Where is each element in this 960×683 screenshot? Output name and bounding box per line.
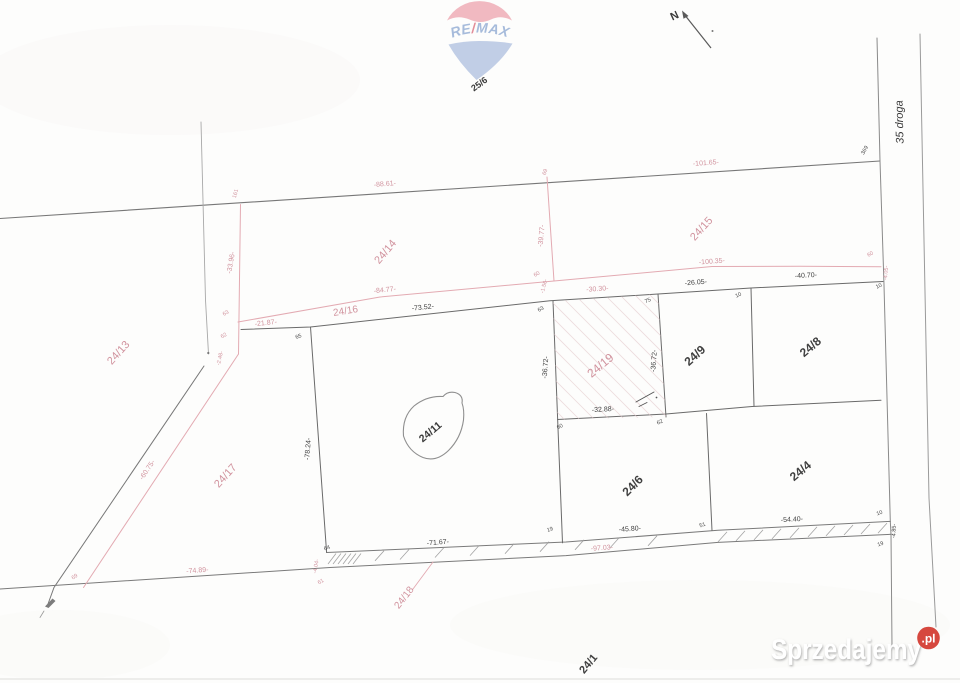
svg-text:-32.88-: -32.88- <box>592 406 615 414</box>
svg-text:-40.70-: -40.70- <box>795 272 818 280</box>
svg-text:-4.85-: -4.85- <box>891 524 898 539</box>
svg-text:.pl: .pl <box>922 632 936 646</box>
svg-text:-4.05-: -4.05- <box>883 265 890 280</box>
svg-text:Sprzedajemy: Sprzedajemy <box>771 634 921 666</box>
svg-text:35 droga: 35 droga <box>893 100 906 144</box>
svg-text:-54.40-: -54.40- <box>781 516 804 524</box>
